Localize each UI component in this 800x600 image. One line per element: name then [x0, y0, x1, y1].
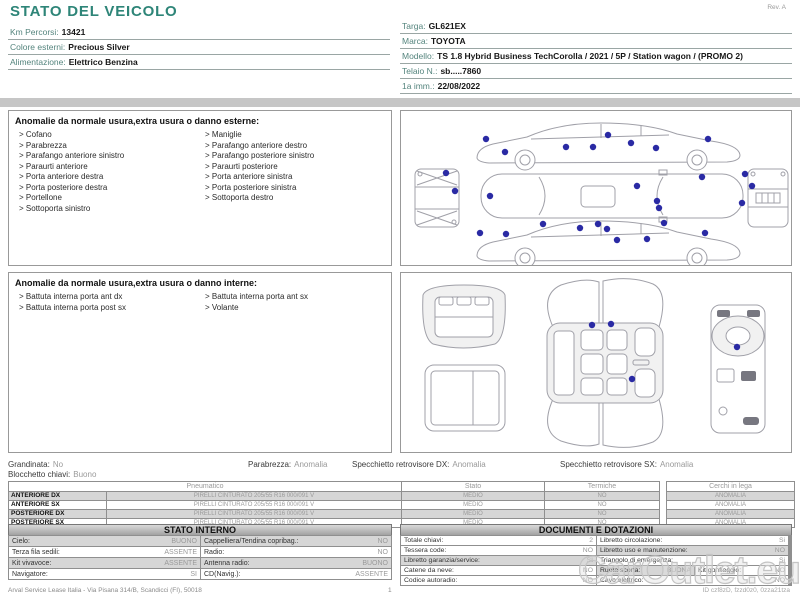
damage-dot	[443, 170, 449, 176]
anomaly-item: Parafango anteriore destro	[205, 141, 391, 152]
car-rear-view	[415, 169, 459, 227]
anomaly-item: Parafango anteriore sinistro	[19, 151, 205, 162]
damage-dot	[604, 226, 610, 232]
interior-anomalies-col2: Battuta interna porta ant sx Volante	[205, 292, 391, 313]
tyre-header-cerchi: Cerchi in lega	[667, 482, 794, 491]
damage-dot	[595, 221, 601, 227]
damage-dot	[503, 231, 509, 237]
stato-interno-title: STATO INTERNO	[8, 524, 392, 535]
damage-dot	[634, 183, 640, 189]
damage-dot	[483, 136, 489, 142]
damage-dot	[742, 171, 748, 177]
anomaly-item: Porta posteriore sinistra	[205, 183, 391, 194]
damage-dot	[608, 321, 614, 327]
damage-dot	[502, 149, 508, 155]
tyre-header-termiche: Termiche	[545, 482, 659, 491]
damage-dot	[540, 221, 546, 227]
damage-dot	[702, 230, 708, 236]
vehicle-condition-report: STATO DEL VEICOLO Rev. A Km Percorsi:134…	[0, 0, 800, 600]
anomaly-item: Volante	[205, 303, 391, 314]
exterior-anomalies-header: Anomalie da normale usura,extra usura o …	[9, 111, 391, 130]
info-row-km: Km Percorsi:13421	[8, 25, 390, 40]
documenti-cell: Libretto circolazione:Si	[597, 536, 788, 545]
cerchi-value: ANOMALIA	[667, 501, 794, 509]
info-row-immatricolazione: 1a imm.:22/08/2022	[400, 79, 792, 94]
tyre-row-spec: PIRELLI CINTURATO 205/55 R16 000/091 V	[107, 510, 401, 518]
exterior-diagram-panel	[400, 110, 792, 266]
anomaly-item: Portellone	[19, 193, 205, 204]
stato-interno-cell: Navigatore:SI	[9, 569, 200, 579]
interior-anomalies-header: Anomalie da normale usura,extra usura o …	[9, 273, 391, 292]
interior-diagram	[401, 273, 791, 452]
exterior-anomalies-col1: Cofano Parabrezza Parafango anteriore si…	[19, 130, 205, 214]
exterior-anomalies-panel: Anomalie da normale usura,extra usura o …	[8, 110, 392, 266]
anomaly-item: Cofano	[19, 130, 205, 141]
stato-interno-cell: Cielo:BUONO	[9, 536, 200, 546]
car-front-view	[748, 169, 788, 227]
anomaly-item: Porta anteriore sinistra	[205, 172, 391, 183]
damage-dot	[614, 237, 620, 243]
tyre-header-stato: Stato	[402, 482, 544, 491]
stato-interno-cell: Antenna radio:BUONO	[201, 558, 391, 568]
damage-dot	[577, 225, 583, 231]
exterior-diagram	[401, 111, 791, 265]
damage-dot	[487, 193, 493, 199]
documenti-cell: Catene da neve:NO	[401, 566, 596, 575]
damage-dot	[653, 145, 659, 151]
documenti-cell: Totale chiavi:2	[401, 536, 596, 545]
dashboard-view	[711, 305, 765, 433]
anomaly-item: Paraurti anteriore	[19, 162, 205, 173]
documenti-cell: Tessera code:NO	[401, 546, 596, 555]
cabin-top-view	[547, 279, 663, 448]
stato-interno-cell: Cappelliera/Tendina copribag.:NO	[201, 536, 391, 546]
footer-page-number: 1	[388, 587, 392, 594]
tyre-row-stato: MEDIO	[402, 501, 544, 509]
info-row-telaio: Telaio N.:sb.....7860	[400, 64, 792, 79]
tyre-row-termiche: NO	[545, 492, 659, 500]
anomaly-item: Parabrezza	[19, 141, 205, 152]
damage-dot	[749, 183, 755, 189]
damage-dot	[661, 220, 667, 226]
anomaly-item: Paraurti posteriore	[205, 162, 391, 173]
cerchi-value: ANOMALIA	[667, 492, 794, 500]
tyre-row-stato: MEDIO	[402, 510, 544, 518]
exterior-anomalies-col2: Maniglie Parafango anteriore destro Para…	[205, 130, 391, 214]
status-blocchetto: Blocchetto chiavi:Buono	[8, 470, 96, 479]
damage-dot	[563, 144, 569, 150]
info-row-modello: Modello:TS 1.8 Hybrid Business TechCorol…	[400, 49, 792, 64]
damage-dot	[656, 205, 662, 211]
documenti-cell: Codice autoradio:NO	[401, 576, 596, 585]
damage-dot	[705, 136, 711, 142]
separator-bar	[0, 98, 800, 107]
damage-dot	[654, 198, 660, 204]
anomaly-item: Battuta interna porta ant dx	[19, 292, 205, 303]
damage-dot	[589, 322, 595, 328]
damage-dot	[452, 188, 458, 194]
damage-dot	[628, 140, 634, 146]
rear-seats-view	[423, 285, 506, 348]
anomaly-item: Battuta interna porta post sx	[19, 303, 205, 314]
damage-dot	[699, 174, 705, 180]
trunk-view	[425, 365, 505, 431]
tyre-row-spec: PIRELLI CINTURATO 205/55 R16 000/091 V	[107, 492, 401, 500]
status-parabrezza: Parabrezza:Anomalia	[248, 460, 328, 469]
damage-dot	[644, 236, 650, 242]
anomaly-item: Maniglie	[205, 130, 391, 141]
stato-interno-section: STATO INTERNO Cielo:BUONO Cappelliera/Te…	[8, 524, 392, 580]
anomaly-item: Porta posteriore destra	[19, 183, 205, 194]
interior-anomalies-col1: Battuta interna porta ant dx Battuta int…	[19, 292, 205, 313]
damage-dot	[590, 144, 596, 150]
anomaly-item: Battuta interna porta ant sx	[205, 292, 391, 303]
vehicle-info-right: Targa:GL621EX Marca:TOYOTA Modello:TS 1.…	[400, 19, 792, 94]
documenti-title: DOCUMENTI E DOTAZIONI	[400, 524, 792, 535]
anomaly-item: Parafango posteriore sinistro	[205, 151, 391, 162]
info-row-alimentazione: Alimentazione:Elettrico Benzina	[8, 55, 390, 70]
anomaly-item: Sottoporta destro	[205, 193, 391, 204]
info-row-marca: Marca:TOYOTA	[400, 34, 792, 49]
documenti-cell: Libretto garanzia/service:SI	[401, 556, 596, 565]
vehicle-info-left: Km Percorsi:13421 Colore esterni:Preciou…	[8, 25, 390, 70]
info-row-colore: Colore esterni:Precious Silver	[8, 40, 390, 55]
revision-label: Rev. A	[767, 4, 786, 11]
tyre-row-termiche: NO	[545, 501, 659, 509]
anomaly-item: Porta anteriore destra	[19, 172, 205, 183]
status-grandinata: Grandinata:No	[8, 460, 63, 469]
tyre-header-pneumatico: Pneumatico	[9, 482, 401, 491]
tyre-table: Pneumatico Stato Termiche ANTERIORE DX P…	[8, 481, 660, 528]
page-title: STATO DEL VEICOLO	[10, 3, 178, 20]
tyre-row-position: POSTERIORE DX	[9, 510, 106, 518]
tyre-row-stato: MEDIO	[402, 492, 544, 500]
stato-interno-cell: Terza fila sedili:ASSENTE	[9, 547, 200, 557]
damage-dot	[739, 200, 745, 206]
interior-anomalies-panel: Anomalie da normale usura,extra usura o …	[8, 272, 392, 453]
status-specchietto-sx: Specchietto retrovisore SX:Anomalia	[560, 460, 693, 469]
tyre-row-position: ANTERIORE DX	[9, 492, 106, 500]
cerchi-value: ANOMALIA	[667, 510, 794, 518]
tyre-row-position: ANTERIORE SX	[9, 501, 106, 509]
damage-dot	[605, 132, 611, 138]
stato-interno-cell: CD(Navig.):ASSENTE	[201, 569, 391, 579]
stato-interno-cell: Kit vivavoce:ASSENTE	[9, 558, 200, 568]
damage-dot	[477, 230, 483, 236]
car-side-view-right	[477, 123, 740, 170]
anomaly-item: Sottoporta sinistro	[19, 204, 205, 215]
stato-interno-cell: Radio:NO	[201, 547, 391, 557]
damage-dot	[734, 344, 740, 350]
tyre-row-termiche: NO	[545, 510, 659, 518]
watermark: CarOutlet.eu	[578, 549, 800, 593]
status-specchietto-dx: Specchietto retrovisore DX:Anomalia	[352, 460, 486, 469]
damage-dot	[629, 376, 635, 382]
interior-diagram-panel	[400, 272, 792, 453]
alloy-wheels-table: Cerchi in lega ANOMALIA ANOMALIA ANOMALI…	[666, 481, 795, 528]
tyre-row-spec: PIRELLI CINTURATO 205/55 R16 000/091 V	[107, 501, 401, 509]
info-row-targa: Targa:GL621EX	[400, 19, 792, 34]
footer-company-address: Arval Service Lease Italia - Via Pisana …	[8, 587, 202, 594]
